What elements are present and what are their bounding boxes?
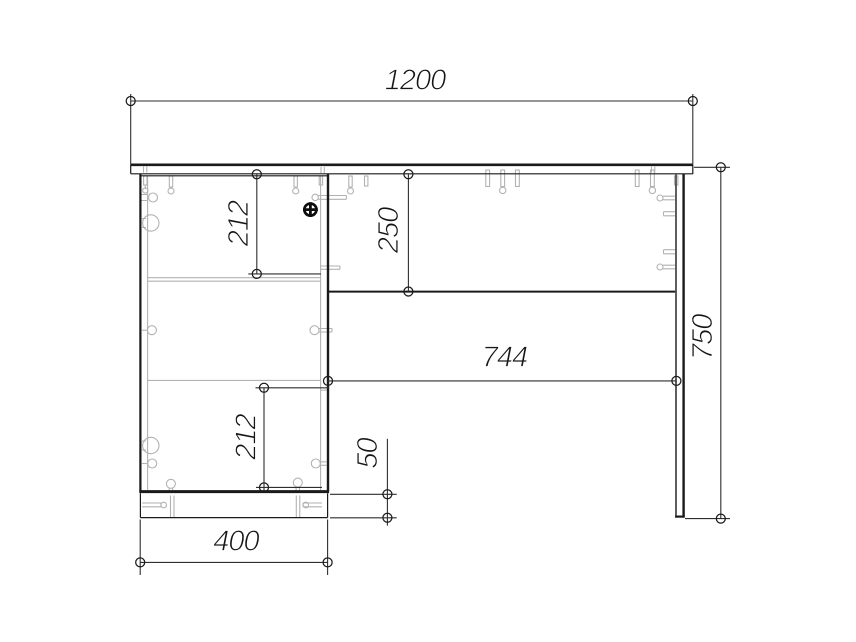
svg-text:750: 750 (687, 314, 719, 360)
svg-text:212: 212 (231, 413, 263, 460)
svg-text:212: 212 (223, 200, 255, 247)
svg-text:744: 744 (482, 342, 528, 374)
svg-text:250: 250 (373, 207, 405, 254)
svg-text:1200: 1200 (385, 65, 446, 97)
svg-text:50: 50 (352, 438, 384, 469)
svg-text:400: 400 (213, 526, 259, 558)
